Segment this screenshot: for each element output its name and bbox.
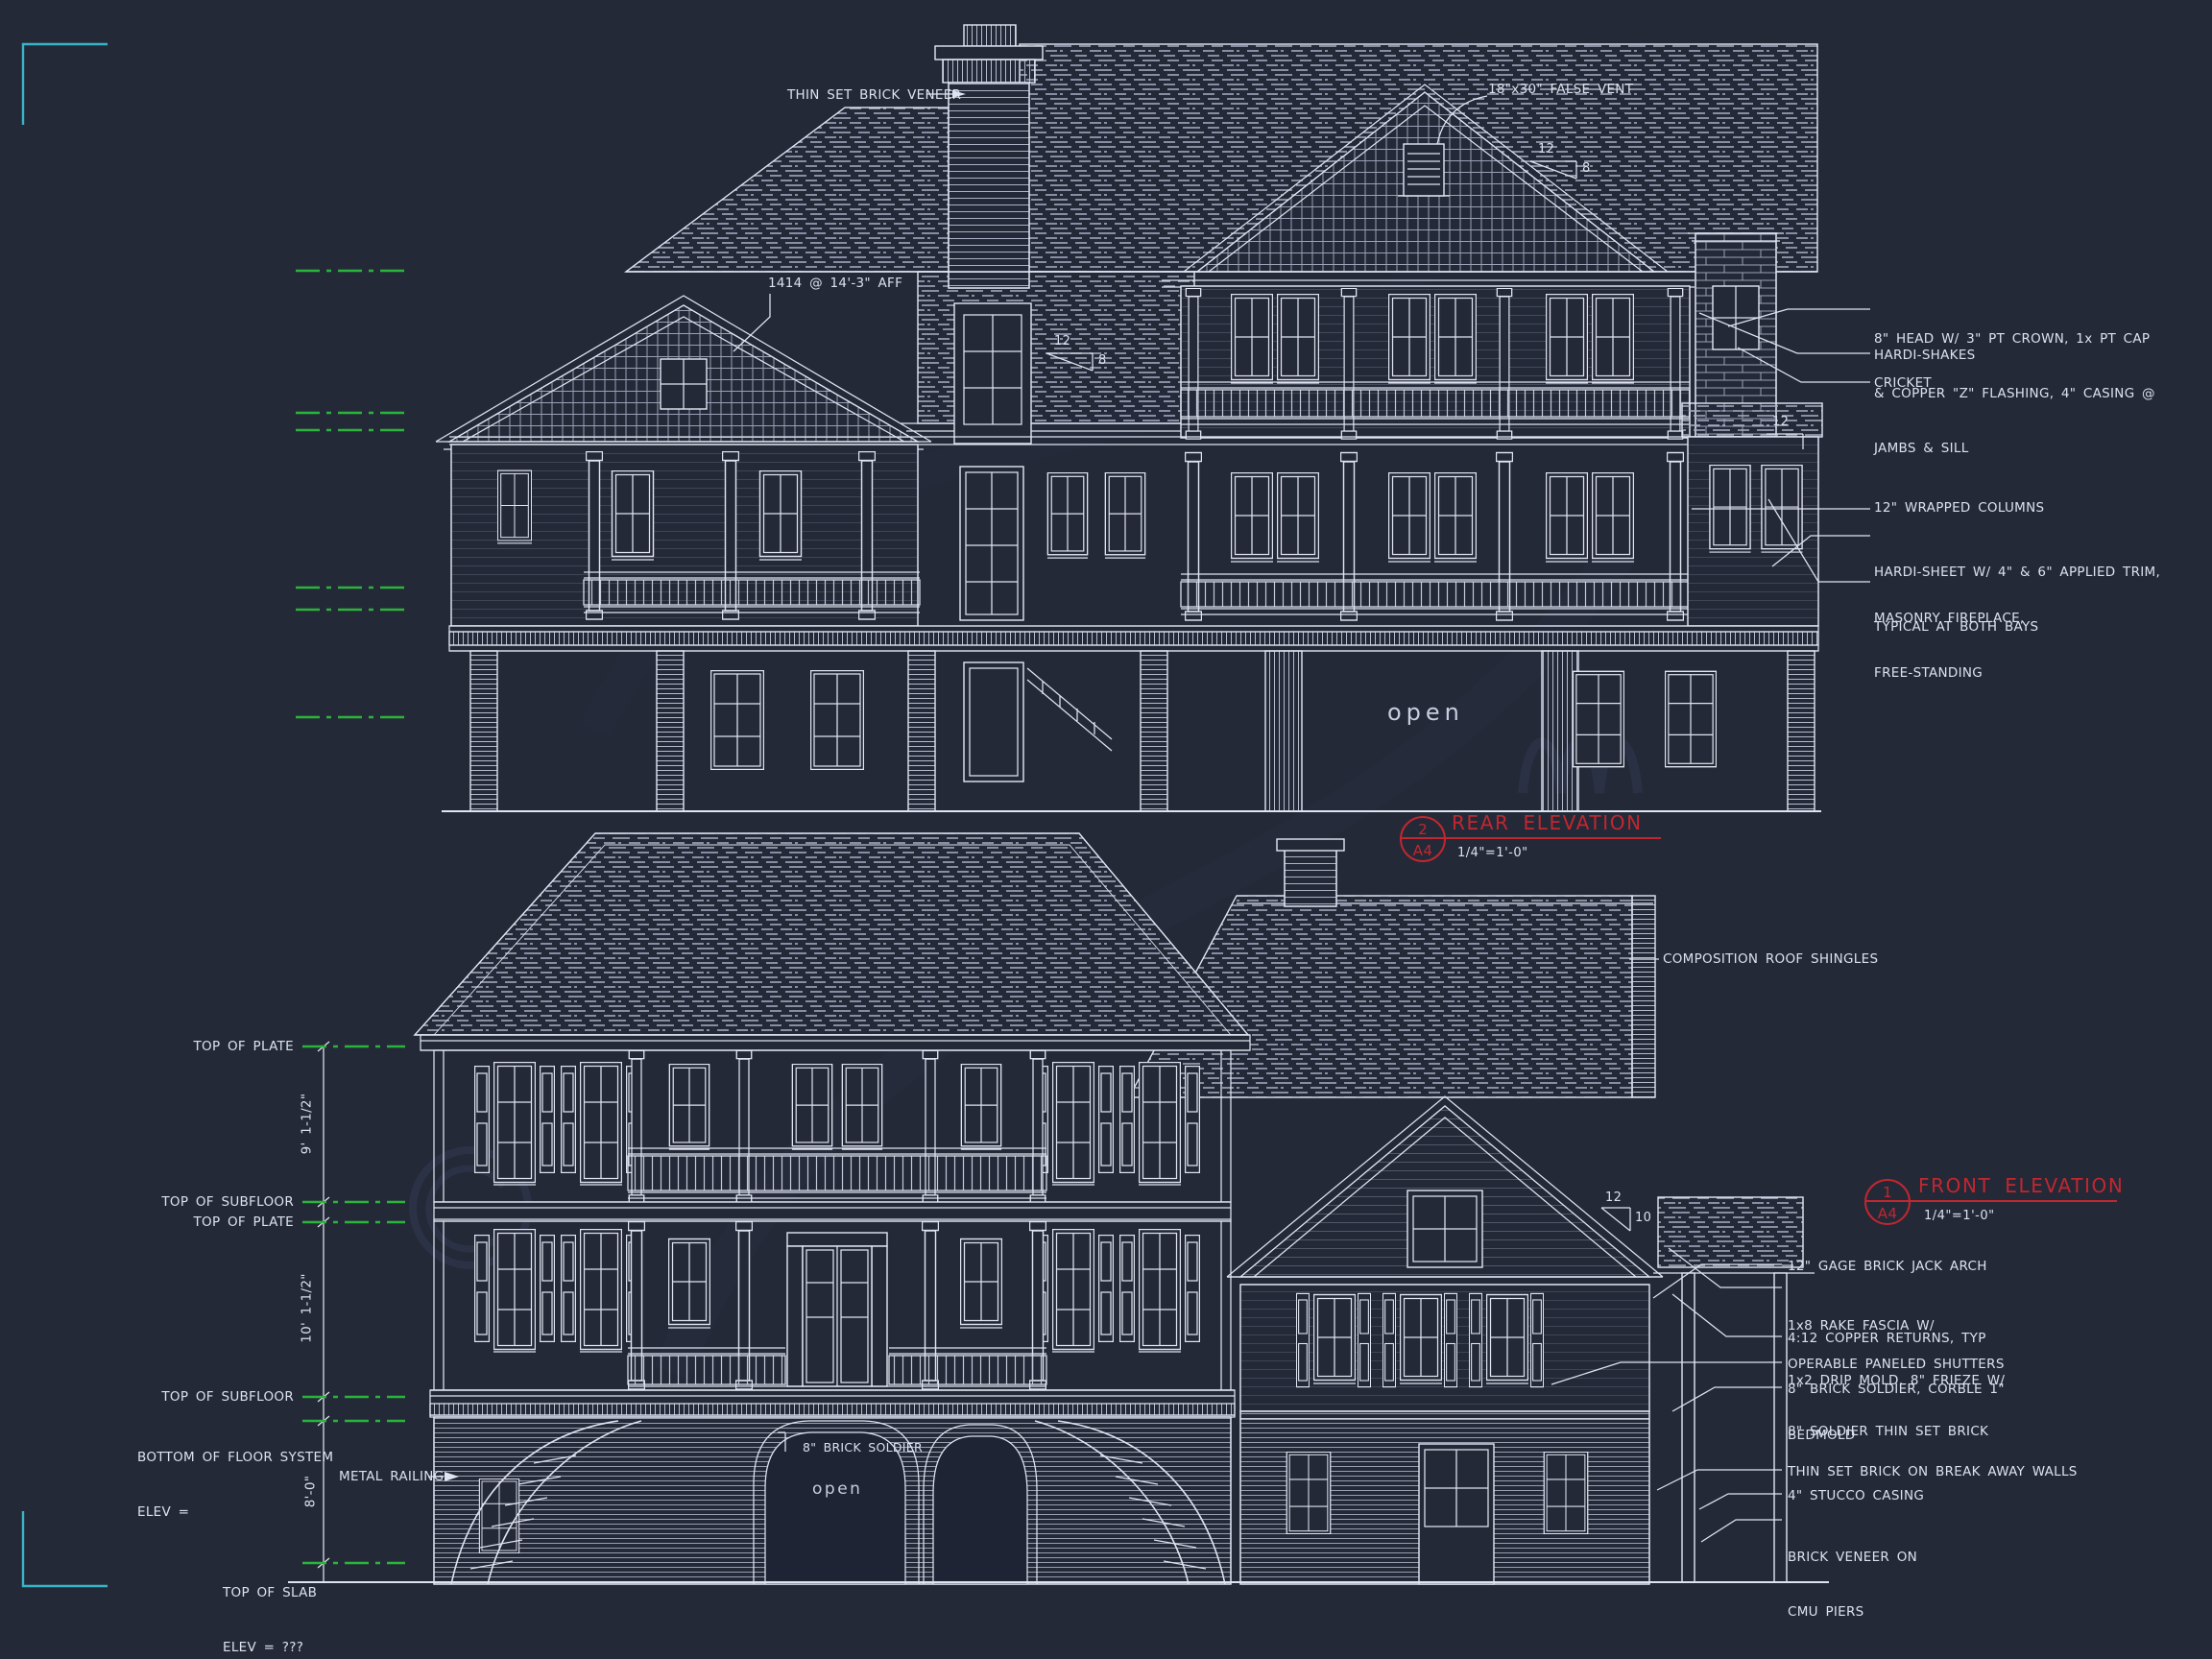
front-first-floor (434, 1221, 1231, 1390)
level-line: TOP OF SLAB (223, 1584, 317, 1602)
callout-line: MASONRY FIREPLACE, (1874, 610, 2025, 628)
callout-line: JAMBS & SILL (1874, 440, 2155, 458)
note-thin-set-brick-veneer: THIN SET BRICK VENEER (787, 86, 961, 105)
front-second-floor (434, 1050, 1231, 1203)
callout-stucco-casing: 4" STUCCO CASING (1788, 1487, 1924, 1505)
rear-main-floor (449, 403, 1822, 626)
callout-line: BRICK VENEER ON (1788, 1549, 1917, 1567)
level-top-of-plate-upper: TOP OF PLATE (58, 1038, 294, 1056)
level-top-of-subfloor-main: TOP OF SUBFLOOR (58, 1388, 294, 1407)
note-false-vent: 18"x30" FALSE VENT (1488, 81, 1633, 99)
rear-foundation (470, 651, 1815, 811)
callout-cricket: CRICKET (1874, 374, 1932, 393)
level-top-of-subfloor-upper: TOP OF SUBFLOOR (58, 1193, 294, 1212)
callout-jack-arch: 12" GAGE BRICK JACK ARCH (1788, 1258, 1987, 1276)
front-slope-rise: 12 (1605, 1189, 1622, 1207)
front-detail-number: 1 (1865, 1184, 1910, 1202)
callout-copper-returns: 4:12 COPPER RETURNS, TYP (1788, 1330, 1986, 1348)
rear-title: REAR ELEVATION (1452, 814, 1643, 832)
dim-upper-story: 9' 1-1/2" (299, 1043, 317, 1206)
callout-paneled-shutters: OPERABLE PANELED SHUTTERS (1788, 1356, 2005, 1374)
rear-sheet-number: A4 (1401, 842, 1445, 860)
rear-slope-right-rise: 12 (1772, 413, 1789, 431)
blueprint-sheet: THIN SET BRICK VENEER 18"x30" FALSE VENT… (0, 0, 2212, 1659)
front-sheet-number: A4 (1865, 1205, 1910, 1223)
rear-detail-number: 2 (1401, 821, 1445, 839)
rear-slope-left-run: 8 (1098, 351, 1107, 370)
level-top-of-plate-main: TOP OF PLATE (58, 1214, 294, 1232)
front-open-label: open (812, 1480, 862, 1499)
callout-masonry-fireplace: MASONRY FIREPLACE, FREE-STANDING (1874, 573, 2025, 701)
rear-slope-left-rise: 12 (1054, 332, 1070, 350)
front-scale: 1/4"=1'-0" (1924, 1207, 1995, 1225)
front-slope-run: 10 (1635, 1209, 1651, 1227)
callout-line: CMU PIERS (1788, 1603, 1917, 1622)
note-metal-railing: METAL RAILING (339, 1468, 444, 1486)
note-brick-soldier: 8" BRICK SOLDIER (803, 1438, 923, 1456)
rear-datum-lines (296, 271, 408, 717)
front-right-wing (1227, 1096, 1663, 1584)
callout-soldier-thin-set: 8" SOLDIER THIN SET BRICK (1788, 1423, 1988, 1441)
note-aff: 1414 @ 14'-3" AFF (768, 275, 902, 293)
callout-break-away-walls: THIN SET BRICK ON BREAK AWAY WALLS (1788, 1463, 2078, 1481)
level-line: ELEV = ??? (223, 1639, 317, 1657)
dim-lower-story: 8'-0" (302, 1410, 321, 1574)
rear-slope-top-run: 8 (1582, 159, 1591, 178)
callout-brick-veneer-cmu: BRICK VENEER ON CMU PIERS (1788, 1512, 1917, 1640)
callout-line: FREE-STANDING (1874, 664, 2025, 683)
chimney (935, 25, 1043, 288)
callout-brick-soldier-corble: 8" BRICK SOLDIER, CORBLE 1" (1788, 1381, 2005, 1399)
note-roof-shingles: COMPOSITION ROOF SHINGLES (1663, 950, 1878, 969)
rear-slope-top-rise: 12 (1538, 140, 1554, 158)
rear-balcony (1181, 286, 1690, 439)
rear-scale: 1/4"=1'-0" (1457, 844, 1528, 862)
sheet-corner-marks (23, 44, 108, 1586)
callout-wrapped-columns: 12" WRAPPED COLUMNS (1874, 499, 2044, 517)
dim-main-story: 10' 1-1/2" (299, 1227, 317, 1390)
rear-open-label: open (1387, 704, 1464, 722)
callout-hardi-shakes: HARDI-SHAKES (1874, 347, 1976, 365)
rear-left-gable (436, 296, 931, 449)
front-title: FRONT ELEVATION (1918, 1177, 2124, 1195)
